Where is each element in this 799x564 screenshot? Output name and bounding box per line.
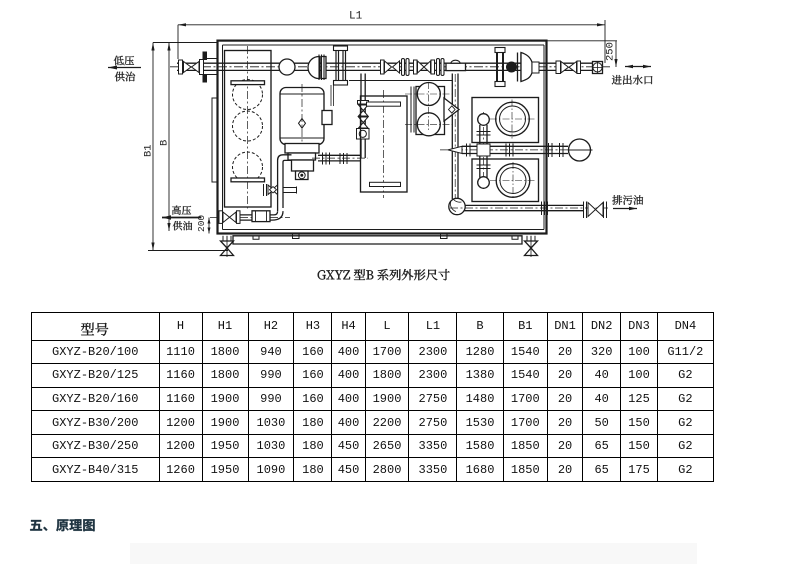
svg-text:L1: L1 xyxy=(349,11,363,23)
svg-text:B1: B1 xyxy=(143,144,155,157)
svg-text:B: B xyxy=(159,140,171,146)
svg-text:250: 250 xyxy=(605,42,617,61)
